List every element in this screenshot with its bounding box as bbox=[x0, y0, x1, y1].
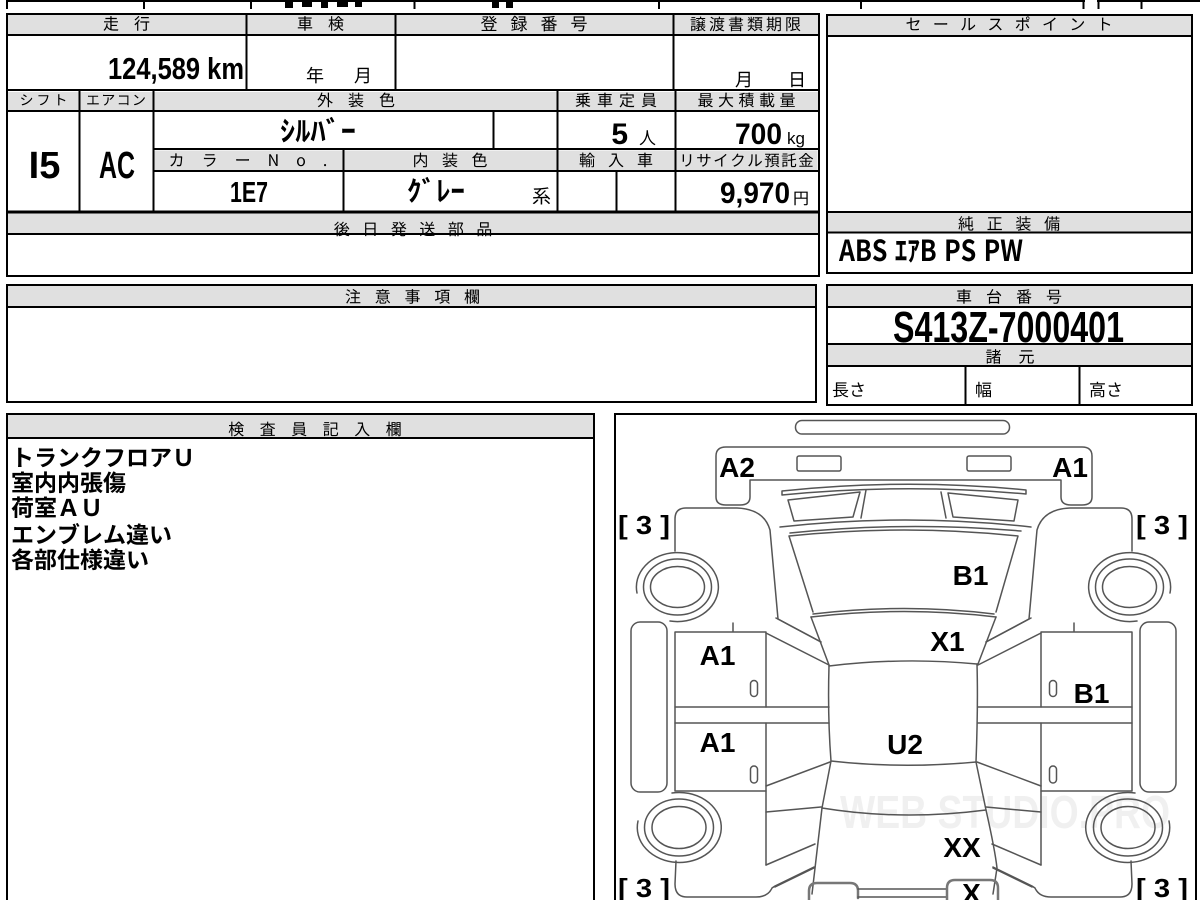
svg-text:S413Z-7000401: S413Z-7000401 bbox=[893, 303, 1124, 352]
svg-text:[ 3 ]: [ 3 ] bbox=[618, 510, 670, 540]
svg-text:A1: A1 bbox=[700, 727, 736, 758]
svg-text:I5: I5 bbox=[29, 145, 61, 187]
svg-text:kg: kg bbox=[787, 129, 805, 148]
svg-text:124,589 km: 124,589 km bbox=[108, 51, 244, 86]
svg-text:U2: U2 bbox=[887, 729, 923, 760]
svg-text:[ 3 ]: [ 3 ] bbox=[1136, 510, 1188, 540]
svg-text:A1: A1 bbox=[700, 640, 736, 671]
svg-text:WEB STUDIO.PRO: WEB STUDIO.PRO bbox=[840, 786, 1170, 838]
svg-text:X: X bbox=[962, 878, 981, 900]
svg-text:700: 700 bbox=[735, 118, 782, 151]
svg-text:[ 3 ]: [ 3 ] bbox=[1136, 873, 1188, 900]
svg-text:AC: AC bbox=[99, 145, 135, 187]
svg-text:B1: B1 bbox=[1074, 678, 1110, 709]
svg-text:5: 5 bbox=[611, 118, 628, 151]
svg-text:1E7: 1E7 bbox=[230, 177, 268, 209]
svg-text:[ 3 ]: [ 3 ] bbox=[618, 873, 670, 900]
svg-text:A2: A2 bbox=[719, 452, 755, 483]
svg-text:X1: X1 bbox=[930, 626, 964, 657]
svg-text:B1: B1 bbox=[953, 560, 989, 591]
svg-text:9,970: 9,970 bbox=[720, 177, 790, 210]
svg-text:A1: A1 bbox=[1052, 452, 1088, 483]
svg-text:XX: XX bbox=[943, 832, 981, 863]
